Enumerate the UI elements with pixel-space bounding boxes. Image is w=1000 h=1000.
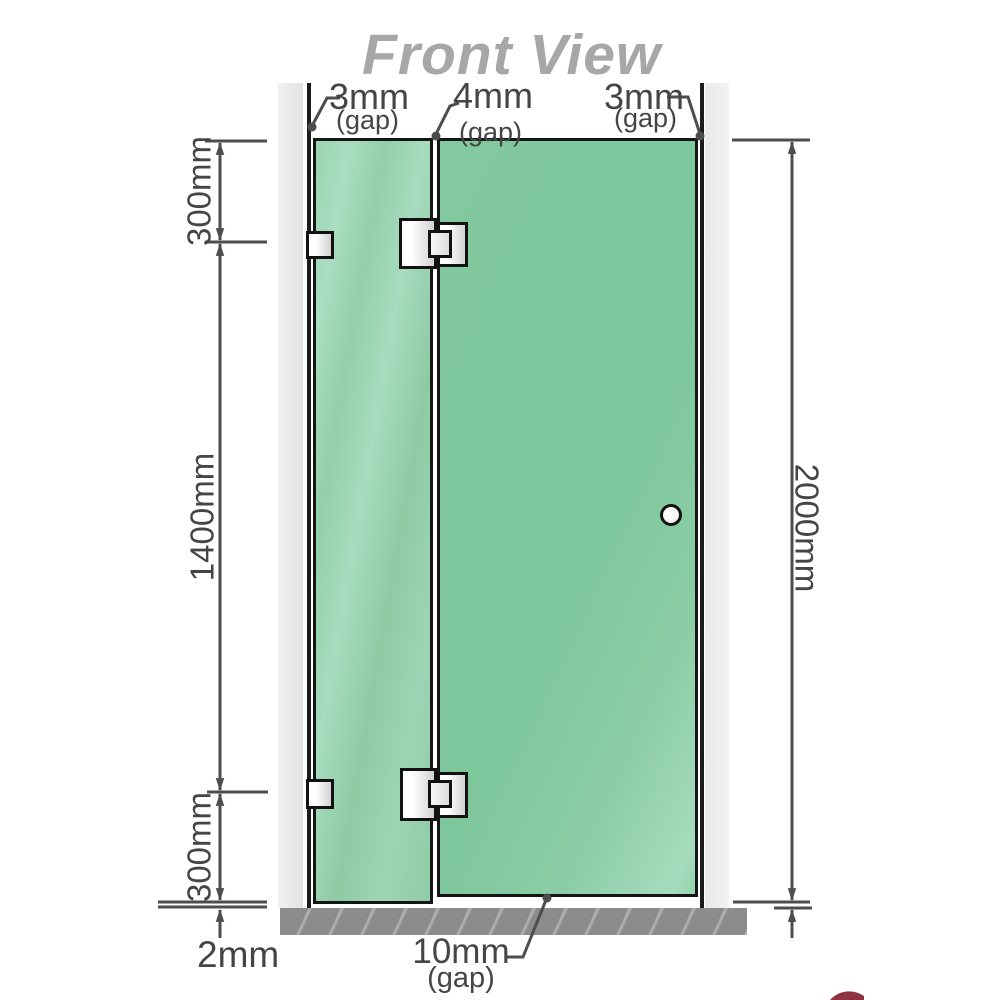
wall-bracket-bottom-icon — [306, 779, 334, 809]
bottom-hinge-tab-icon — [428, 780, 452, 808]
right-wall-edge-line — [700, 83, 704, 908]
shower-screen-front-view-diagram: Front View — [0, 0, 1000, 1000]
dimension-left-bottom: 300mm — [183, 792, 216, 902]
door-glass-panel — [437, 138, 698, 897]
gap-label-middle-unit: (gap) — [459, 119, 522, 146]
top-hinge-tab-icon — [428, 230, 452, 258]
left-wall-post — [278, 83, 303, 908]
dimension-left-top: 300mm — [183, 136, 216, 246]
gap-label-right-unit: (gap) — [614, 105, 677, 132]
wall-bracket-top-icon — [306, 231, 334, 259]
dimension-total-height: 2000mm — [791, 464, 824, 592]
floor-base-bar — [280, 908, 747, 935]
gap-label-middle-value: 4mm — [453, 78, 533, 114]
gap-label-left-unit: (gap) — [336, 107, 399, 134]
dimension-floor-gap: 2mm — [197, 936, 279, 973]
right-wall-post — [705, 83, 729, 908]
dimension-left-middle: 1400mm — [186, 453, 219, 581]
door-handle-knob-icon — [660, 504, 682, 526]
corner-red-mark — [830, 991, 864, 1000]
dimension-door-floor-gap-unit: (gap) — [402, 964, 520, 993]
